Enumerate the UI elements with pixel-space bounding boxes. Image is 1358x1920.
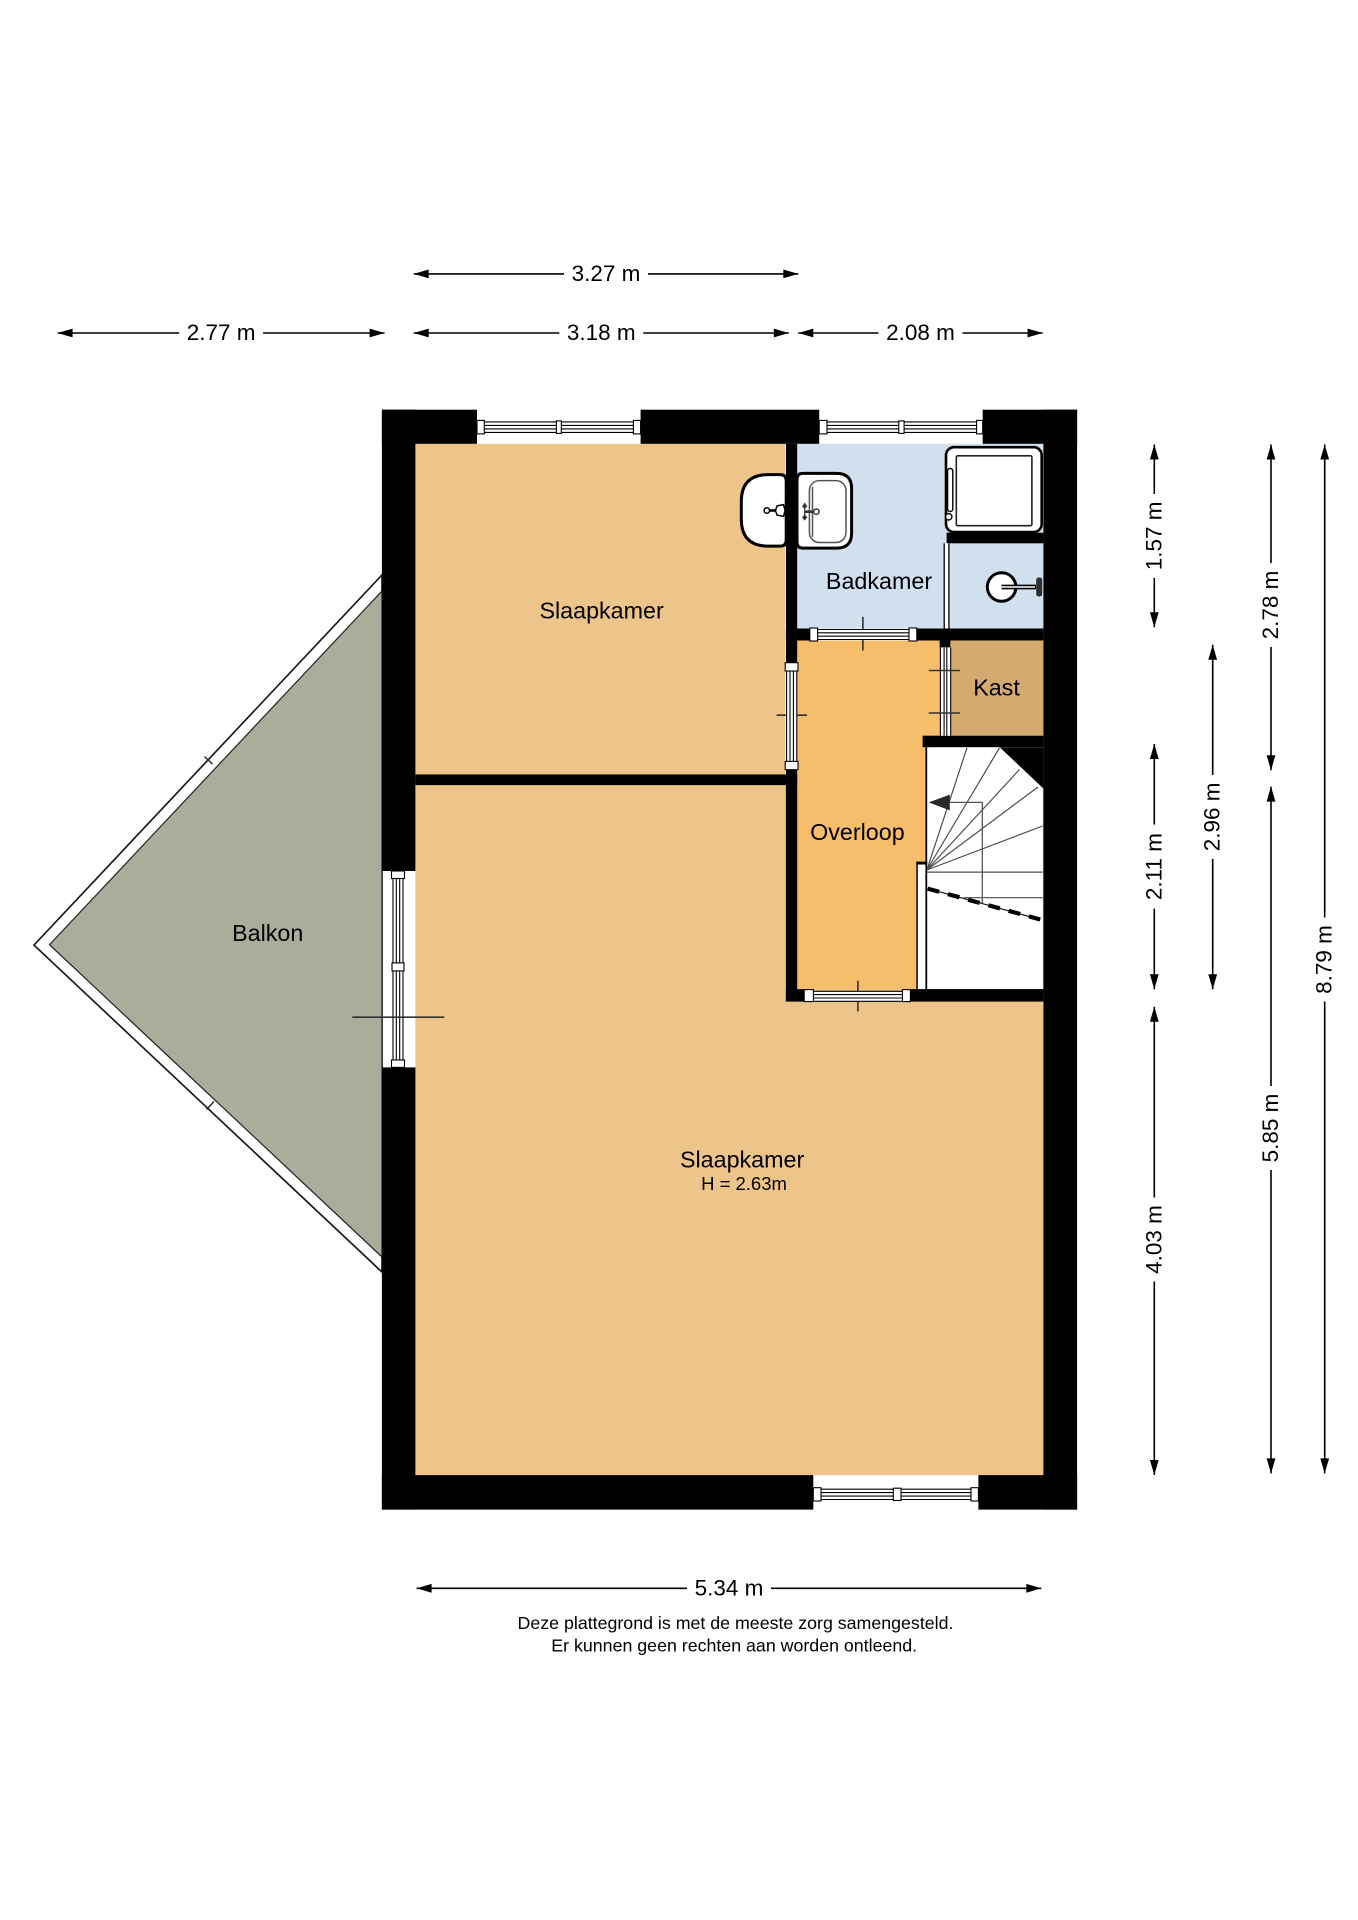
svg-text:1.57 m: 1.57 m — [1141, 502, 1166, 571]
svg-text:5.34 m: 5.34 m — [695, 1575, 764, 1600]
svg-text:Slaapkamer: Slaapkamer — [539, 598, 664, 624]
svg-text:Er kunnen geen rechten aan wor: Er kunnen geen rechten aan worden ontlee… — [551, 1636, 917, 1656]
svg-text:3.18 m: 3.18 m — [567, 320, 636, 345]
svg-text:2.96 m: 2.96 m — [1200, 783, 1225, 852]
svg-text:8.79 m: 8.79 m — [1312, 925, 1337, 994]
svg-text:Overloop: Overloop — [810, 819, 905, 845]
svg-text:H = 2.63m: H = 2.63m — [701, 1173, 787, 1194]
svg-text:4.03 m: 4.03 m — [1141, 1205, 1166, 1274]
svg-text:Deze plattegrond is met de mee: Deze plattegrond is met de meeste zorg s… — [518, 1613, 954, 1633]
svg-text:Slaapkamer: Slaapkamer — [680, 1146, 805, 1172]
svg-text:Badkamer: Badkamer — [826, 568, 932, 594]
svg-text:3.27 m: 3.27 m — [572, 261, 641, 286]
svg-text:2.08 m: 2.08 m — [886, 320, 955, 345]
svg-text:Balkon: Balkon — [232, 920, 303, 946]
svg-text:2.11 m: 2.11 m — [1141, 833, 1166, 900]
svg-text:2.78 m: 2.78 m — [1258, 571, 1283, 640]
svg-text:5.85 m: 5.85 m — [1258, 1094, 1283, 1163]
svg-text:Kast: Kast — [973, 675, 1020, 701]
svg-text:2.77 m: 2.77 m — [187, 320, 256, 345]
